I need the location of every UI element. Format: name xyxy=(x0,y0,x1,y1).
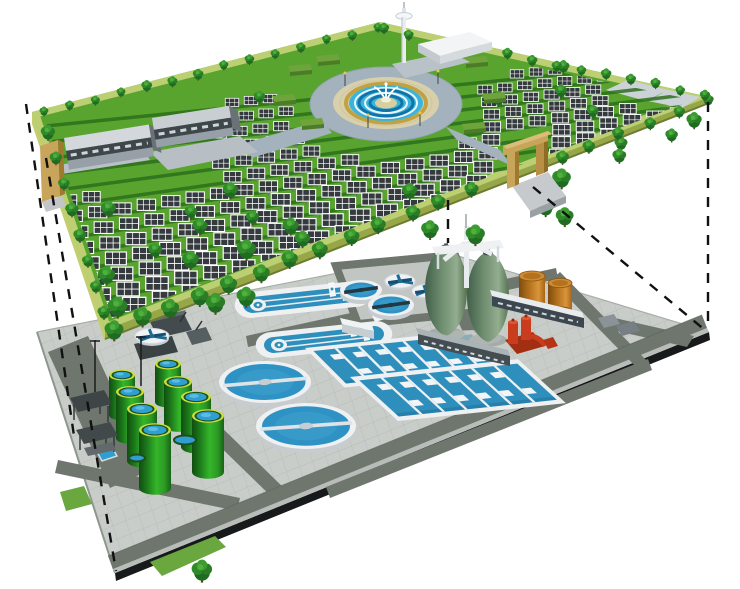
solar-panel xyxy=(620,209,644,228)
green-tank xyxy=(192,409,224,478)
solar-panel xyxy=(475,200,497,217)
ground-basin xyxy=(174,436,196,445)
solar-panel xyxy=(695,170,718,188)
solar-panel xyxy=(666,176,689,194)
water-glint xyxy=(148,427,158,431)
solar-panel xyxy=(701,125,720,140)
solar-panel xyxy=(624,149,644,165)
solar-panel xyxy=(579,193,602,211)
ground-basin xyxy=(129,455,145,462)
tank-body xyxy=(139,430,171,495)
solar-panel xyxy=(589,215,613,234)
cover-hub xyxy=(398,279,402,283)
solar-panel xyxy=(587,179,609,196)
clarifier-1 xyxy=(219,361,311,407)
solar-panel xyxy=(593,166,614,183)
solar-panel xyxy=(643,169,665,186)
solar-panel xyxy=(647,156,668,173)
scene-canvas xyxy=(0,0,740,589)
solar-panel xyxy=(671,164,693,181)
tree xyxy=(665,128,678,142)
water-glint xyxy=(189,394,198,398)
water-glint xyxy=(162,362,170,365)
solar-panel xyxy=(676,129,695,144)
water-glint xyxy=(124,389,133,392)
water-glint xyxy=(172,379,181,382)
solar-panel xyxy=(571,158,591,174)
water-glint xyxy=(135,406,144,410)
tree xyxy=(556,207,574,227)
solar-panel xyxy=(608,187,631,205)
open-tank-2 xyxy=(368,294,414,320)
solar-panel xyxy=(599,201,622,220)
solar-panel xyxy=(615,174,637,191)
solar-panel xyxy=(629,195,652,214)
tree xyxy=(612,148,626,163)
solar-panel xyxy=(625,137,644,152)
solar-panel xyxy=(527,228,551,247)
solar-panel xyxy=(699,158,721,175)
cutaway-illustration xyxy=(0,0,740,589)
clarifier-2 xyxy=(256,403,356,453)
tank-body xyxy=(192,416,224,479)
solar-panel xyxy=(675,152,696,169)
solar-panel xyxy=(650,144,670,160)
solar-panel xyxy=(681,196,705,215)
solar-panel xyxy=(659,189,682,208)
solar-panel xyxy=(702,136,722,152)
solar-panel xyxy=(377,232,400,250)
water-glint xyxy=(201,413,211,417)
covered-tank-1 xyxy=(385,274,415,291)
cover-hub xyxy=(150,334,154,338)
solar-panel xyxy=(650,202,674,221)
solar-panel xyxy=(676,140,696,156)
solar-panel xyxy=(702,147,723,164)
tree xyxy=(192,560,212,583)
solar-panel xyxy=(620,161,641,178)
solar-panel xyxy=(493,209,516,227)
solar-panel xyxy=(637,182,660,200)
tree xyxy=(686,112,701,129)
solar-panel xyxy=(510,219,533,238)
water-glint xyxy=(116,373,124,376)
tree xyxy=(421,220,439,240)
